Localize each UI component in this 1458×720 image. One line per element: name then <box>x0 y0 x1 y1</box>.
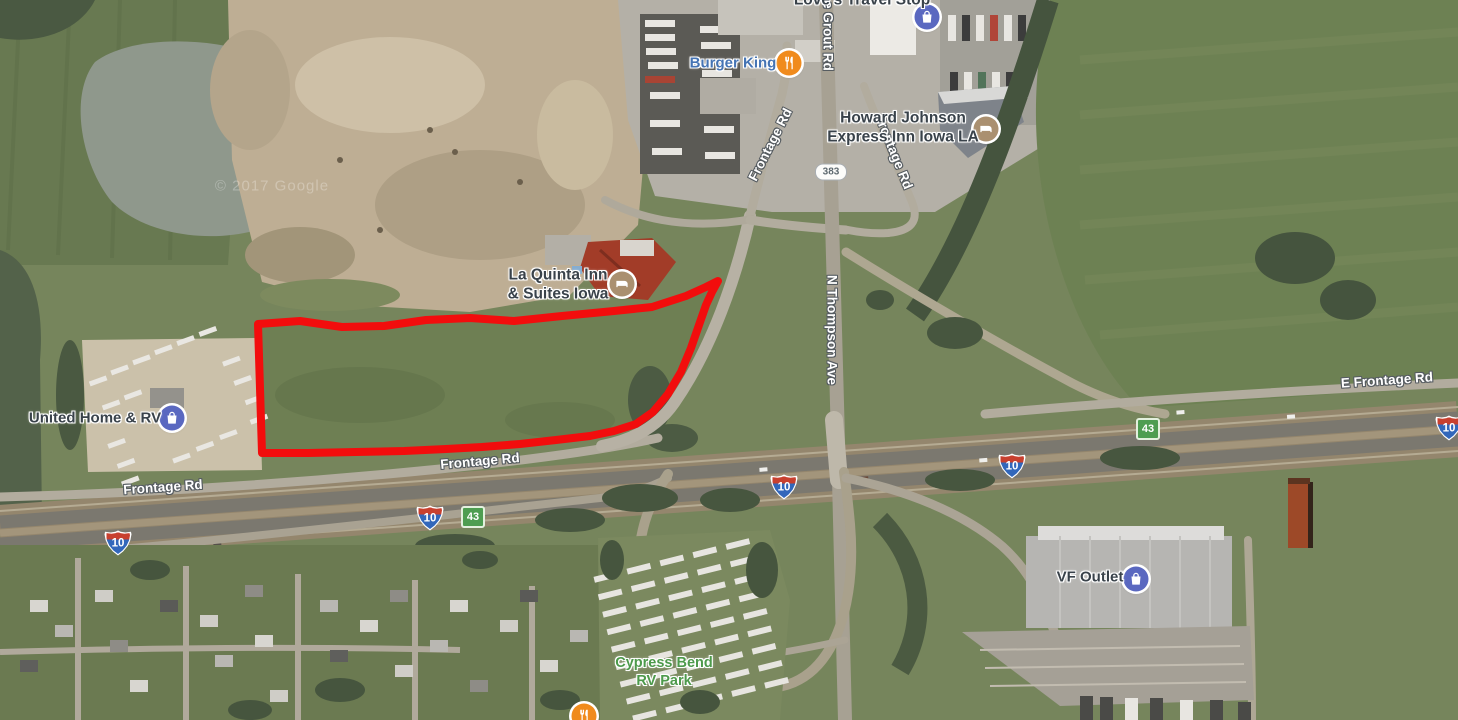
poi-label-line: Cypress Bend <box>615 654 713 672</box>
poi-label-burger-king[interactable]: Burger King <box>690 55 777 74</box>
interstate-10-shield: 10 <box>1436 416 1458 441</box>
poi-label-vf-outlet[interactable]: VF Outlet <box>1057 569 1124 588</box>
united-home-rv-lot <box>56 319 275 486</box>
map-canvas[interactable]: Frontage Rd Frontage Rd E Frontage Rd Fr… <box>0 0 1458 720</box>
poi-label-line: RV Park <box>615 672 713 690</box>
burger-king-building <box>700 78 756 114</box>
residential-area <box>0 545 630 720</box>
poi-label-cypress-bend[interactable]: Cypress Bend RV Park <box>615 654 713 690</box>
route-43-shield: 43 <box>1136 418 1160 440</box>
road-label-grout-rd: e Grout Rd <box>819 1 836 71</box>
poi-label-united-home-rv[interactable]: United Home & RV <box>29 410 161 429</box>
poi-label-line: La Quinta Inn <box>508 266 609 285</box>
satellite-imagery <box>0 0 1458 720</box>
interstate-10-shield: 10 <box>999 454 1026 479</box>
restaurant-icon[interactable] <box>777 51 802 76</box>
poi-label-line: Express Inn Iowa LA <box>827 128 979 147</box>
shopping-icon[interactable] <box>1124 567 1149 592</box>
road-label-n-thompson-ave: N Thompson Ave <box>823 275 840 385</box>
lodging-icon[interactable] <box>610 272 635 297</box>
rv-park <box>594 530 794 720</box>
interstate-10-shield: 10 <box>417 506 444 531</box>
route-383-shield: 383 <box>815 164 847 181</box>
poi-label-la-quinta[interactable]: La Quinta Inn & Suites Iowa <box>508 266 609 305</box>
poi-label-loves[interactable]: Love's Travel Stop <box>794 0 930 10</box>
poi-label-line: Howard Johnson <box>827 109 979 128</box>
route-43-shield: 43 <box>461 506 485 528</box>
copyright-watermark: © 2017 Google <box>215 178 329 195</box>
interstate-10-shield: 10 <box>771 475 798 500</box>
poi-label-line: & Suites Iowa <box>508 285 609 304</box>
interstate-10-shield: 10 <box>105 531 132 556</box>
barn-building <box>1288 478 1313 548</box>
poi-label-howard-johnson[interactable]: Howard Johnson Express Inn Iowa LA <box>827 109 979 148</box>
shopping-icon[interactable] <box>160 406 185 431</box>
